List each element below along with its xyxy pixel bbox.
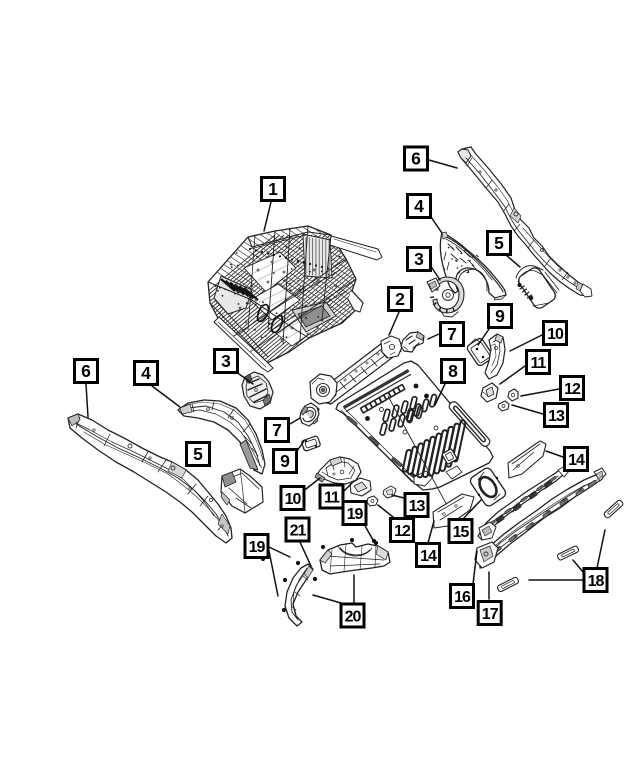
svg-text:9: 9 bbox=[280, 451, 290, 471]
svg-text:21: 21 bbox=[290, 523, 307, 540]
svg-text:7: 7 bbox=[272, 420, 282, 440]
svg-text:10: 10 bbox=[285, 491, 302, 508]
svg-text:18: 18 bbox=[588, 573, 605, 590]
svg-text:14: 14 bbox=[420, 548, 437, 565]
svg-text:14: 14 bbox=[568, 452, 585, 469]
svg-text:9: 9 bbox=[495, 306, 505, 326]
svg-text:12: 12 bbox=[564, 381, 581, 398]
svg-text:13: 13 bbox=[548, 408, 565, 425]
svg-text:5: 5 bbox=[494, 233, 504, 253]
svg-text:10: 10 bbox=[547, 326, 564, 343]
svg-text:3: 3 bbox=[414, 249, 424, 269]
svg-text:11: 11 bbox=[531, 355, 547, 372]
svg-text:16: 16 bbox=[454, 589, 471, 606]
svg-text:2: 2 bbox=[395, 289, 405, 309]
svg-text:11: 11 bbox=[324, 490, 340, 507]
svg-text:3: 3 bbox=[221, 351, 231, 371]
svg-text:19: 19 bbox=[249, 539, 266, 556]
svg-text:17: 17 bbox=[482, 606, 499, 623]
svg-text:12: 12 bbox=[394, 523, 411, 540]
svg-text:13: 13 bbox=[409, 498, 426, 515]
svg-text:15: 15 bbox=[453, 524, 470, 541]
svg-text:19: 19 bbox=[347, 506, 364, 523]
svg-text:4: 4 bbox=[414, 196, 424, 216]
svg-text:20: 20 bbox=[345, 609, 362, 626]
svg-text:6: 6 bbox=[411, 149, 421, 169]
svg-text:1: 1 bbox=[268, 179, 278, 199]
svg-text:7: 7 bbox=[447, 324, 457, 344]
svg-text:4: 4 bbox=[141, 363, 151, 383]
svg-text:5: 5 bbox=[193, 444, 203, 464]
svg-text:6: 6 bbox=[81, 361, 91, 381]
svg-text:8: 8 bbox=[448, 361, 458, 381]
